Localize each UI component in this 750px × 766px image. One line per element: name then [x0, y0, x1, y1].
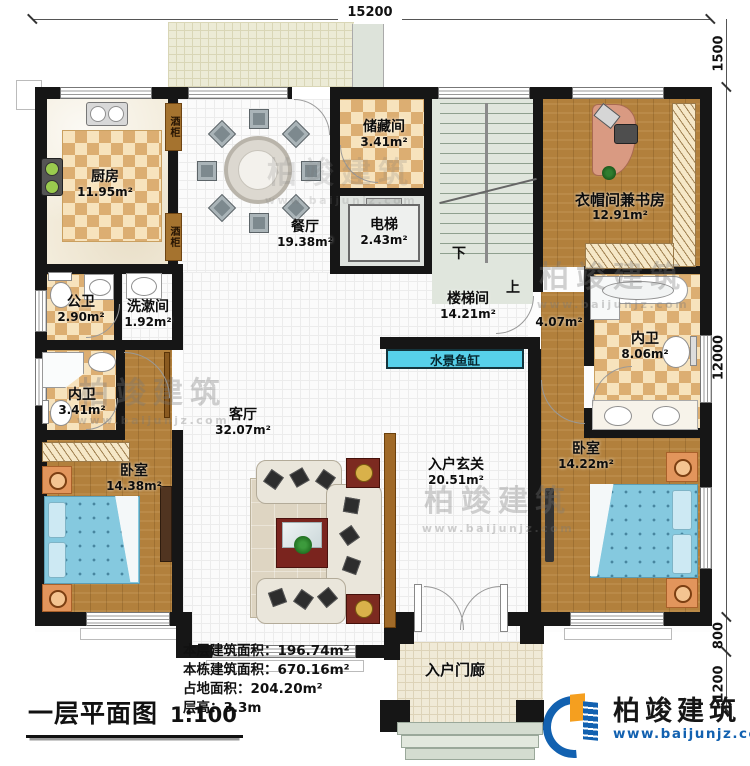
label-public-bath: 公卫2.90m² [45, 295, 117, 324]
rname: 内卫 [605, 332, 685, 348]
label-elevator: 电梯2.43m² [334, 218, 434, 247]
dim-right-800: 800 [712, 616, 727, 656]
tv-cabinet-left [160, 486, 172, 562]
rname: 客厅 [197, 408, 289, 424]
oval [355, 464, 373, 482]
label-bedroom-right: 卧室14.22m² [540, 442, 632, 471]
window-study [572, 87, 664, 99]
label-stair-hall: 楼梯间14.21m² [413, 292, 523, 321]
study-plant [602, 166, 616, 180]
stat-floor-area: 本层建筑面积：196.74m² [183, 642, 350, 661]
bed-right-fold [590, 484, 616, 576]
divider-screen [384, 433, 396, 628]
rarea: 20.51m² [401, 474, 511, 487]
label-foyer: 入户玄关20.51m² [401, 458, 511, 487]
porch-step-3 [405, 748, 535, 760]
decor: 本栋建筑面积： [183, 661, 278, 680]
rarea: 14.21m² [413, 308, 523, 321]
wine-cabinet-top: 酒柜 [165, 103, 182, 151]
wardrobe-bedroomL [42, 442, 130, 462]
rarea: 12.91m² [538, 209, 702, 222]
porch-step-1 [397, 722, 543, 735]
decor: 670.16m² [278, 661, 350, 680]
wall-elevator-bottom [330, 266, 432, 274]
wall-baths-mid [35, 340, 182, 350]
rname: 洗漱间 [118, 300, 178, 316]
pillow [48, 502, 66, 538]
dim-right-1500: 1500 [712, 34, 727, 74]
aquarium: 水景鱼缸 [386, 349, 524, 369]
stat-building-area: 本栋建筑面积：670.16m² [183, 661, 350, 680]
oval [355, 600, 373, 618]
rarea: 11.95m² [55, 186, 155, 199]
label-porch: 入户门廊 [400, 662, 510, 679]
elevator-door [366, 198, 402, 205]
window-kitchen [60, 87, 152, 99]
pillow [672, 534, 692, 574]
label-storage: 储藏间3.41m² [334, 120, 434, 149]
rname: 公卫 [45, 295, 117, 311]
wall-foyer-bedroomR [528, 349, 541, 618]
rname: 卧室 [540, 442, 632, 458]
wine-cabinet-label: 酒柜 [166, 116, 181, 138]
label-corridor: 4.07m² [528, 316, 590, 329]
label-washroom: 洗漱间1.92m² [118, 300, 178, 329]
oval [652, 406, 680, 426]
decor: 196.74m² [278, 642, 350, 661]
rname: 入户门廊 [400, 662, 510, 679]
terrace [168, 22, 354, 87]
cushion [343, 497, 360, 514]
stair-divider [485, 103, 488, 263]
aquarium-label: 水景鱼缸 [430, 350, 480, 369]
plan-scale: 1:100 [170, 703, 237, 727]
dining-table-top [238, 150, 278, 190]
wall-bathL-bedroom [35, 430, 125, 440]
pillow [672, 490, 692, 530]
rarea: 14.22m² [540, 458, 632, 471]
rarea: 3.41m² [334, 136, 434, 149]
oval [602, 281, 674, 300]
nightstand [42, 466, 72, 494]
rarea: 8.06m² [605, 348, 685, 361]
tv-panel-right [545, 488, 554, 562]
label-study: 衣帽间兼书房12.91m² [538, 192, 702, 222]
window-bedroomR-side [700, 487, 712, 569]
sill-bedroomL [80, 628, 178, 640]
window-bedroomR [570, 612, 664, 626]
window-dining [188, 87, 288, 99]
nightstand [42, 584, 72, 612]
porch-step-2 [401, 735, 539, 748]
decor: 204.20m² [251, 680, 323, 699]
oval [131, 277, 157, 296]
rarea: 14.38m² [88, 480, 180, 493]
toilet-pub-tank [48, 272, 72, 281]
wine-cabinet-bottom: 酒柜 [165, 213, 182, 261]
label-bedroom-left: 卧室14.38m² [88, 464, 180, 493]
oval [604, 406, 632, 426]
wardrobe-study-bottom [585, 243, 674, 269]
porch-pier-2 [520, 616, 544, 644]
logo-building-blue [583, 701, 598, 741]
company-name: 柏竣建筑 [613, 698, 750, 726]
nightstand [666, 452, 698, 482]
pillow [48, 542, 66, 578]
terrace-path [352, 24, 384, 87]
wall-aquarium [380, 337, 540, 349]
rname: 储藏间 [334, 120, 434, 136]
label-living: 客厅32.07m² [197, 408, 289, 437]
wall-leftzone-living-b [172, 430, 183, 618]
label-bath-right: 内卫8.06m² [605, 332, 685, 361]
dim-right-12000: 12000 [712, 333, 727, 383]
entry-door-leaf-right [500, 584, 508, 632]
bed-left-fold [112, 496, 138, 582]
rname: 衣帽间兼书房 [538, 192, 702, 209]
company-logo-icon [543, 688, 605, 752]
stair-down-label: 下 [452, 243, 466, 263]
entry-door-leaf-left [414, 584, 422, 632]
dining-chair [197, 161, 217, 181]
wardrobe-study-side [672, 103, 696, 267]
rarea: 2.43m² [334, 234, 434, 247]
nightstand [666, 578, 698, 608]
rname: 内卫 [47, 388, 117, 404]
rname: 电梯 [334, 218, 434, 234]
rarea: 2.90m² [45, 311, 117, 324]
plan-title: 一层平面图 [28, 694, 158, 730]
rname: 楼梯间 [413, 292, 523, 308]
logo-text: 柏竣建筑 www.baijunjz.com [613, 698, 750, 742]
title-block: 一层平面图 1:100 [26, 694, 243, 738]
oval [90, 106, 106, 122]
company-logo: 柏竣建筑 www.baijunjz.com [543, 688, 750, 752]
toilet-right [690, 336, 697, 366]
label-kitchen: 厨房11.95m² [55, 170, 155, 199]
floor-plan-canvas: 15200 1500 12000 800 1200 [0, 0, 750, 766]
company-website: www.baijunjz.com [613, 726, 750, 742]
window-bathR [700, 335, 712, 403]
dim-top: 15200 [338, 5, 402, 20]
rarea: 1.92m² [118, 316, 178, 329]
rarea: 32.07m² [197, 424, 289, 437]
rname: 入户玄关 [401, 458, 511, 474]
wall-storage-bottom [330, 188, 432, 196]
door-gap-top [292, 87, 330, 99]
dining-chair [301, 161, 321, 181]
rarea: 3.41m² [47, 404, 117, 417]
wine-cabinet-label: 酒柜 [166, 226, 181, 248]
oval [108, 106, 124, 122]
label-bath-left: 内卫3.41m² [47, 388, 117, 417]
decor: 本层建筑面积： [183, 642, 278, 661]
window-bedroomL [86, 612, 170, 626]
study-monitor [614, 124, 638, 144]
living-plant [294, 536, 312, 554]
dining-chair [249, 109, 269, 129]
rname: 厨房 [55, 170, 155, 186]
sink-bathL [88, 352, 116, 372]
rname: 卧室 [88, 464, 180, 480]
window-stair [438, 87, 530, 99]
sill-bedroomR [564, 628, 672, 640]
rarea: 4.07m² [528, 316, 590, 329]
